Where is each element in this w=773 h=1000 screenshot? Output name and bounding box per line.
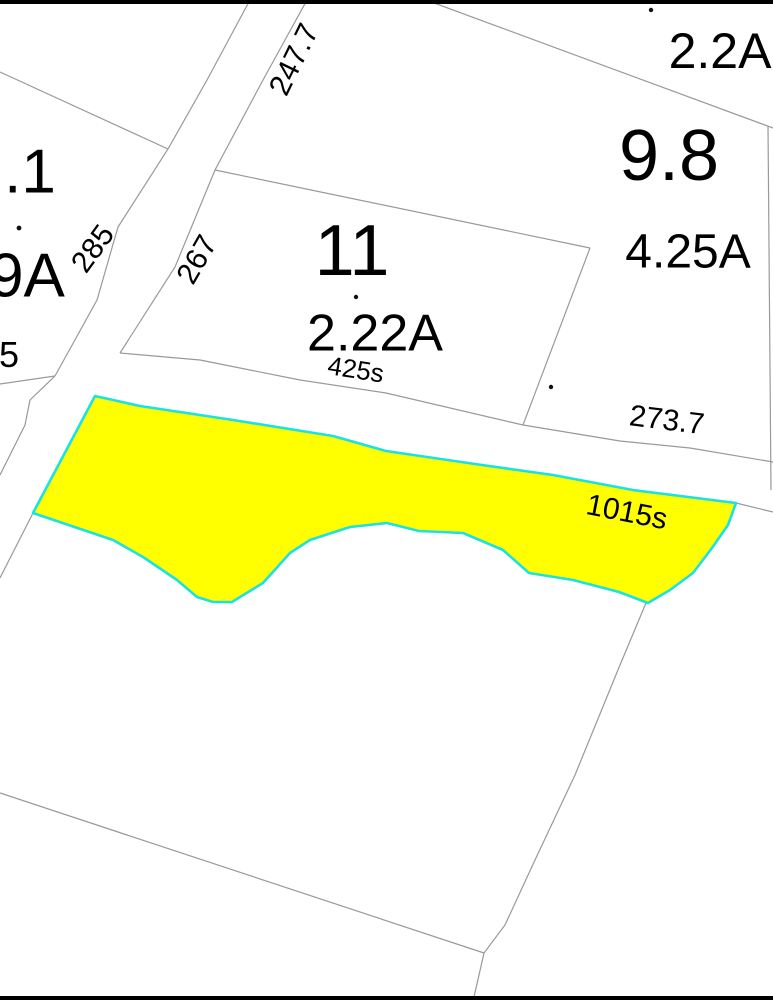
- parcel-map-page: .19A5285267247.7112.22A425s2.2A9.84.25A2…: [0, 0, 773, 1000]
- label-parcel-1-1: .1: [4, 137, 56, 206]
- label-area-2-2a: 2.2A: [669, 23, 773, 79]
- label-area-2-22a: 2.22A: [307, 305, 443, 363]
- map-canvas[interactable]: .19A5285267247.7112.22A425s2.2A9.84.25A2…: [0, 0, 773, 1000]
- label-parcel-9-8: 9.8: [619, 116, 719, 196]
- label-area-4-25a: 4.25A: [625, 225, 750, 278]
- point-marker: [549, 385, 553, 389]
- label-parcel-9a: 9A: [0, 241, 66, 310]
- bottom-border: [0, 996, 773, 1000]
- point-marker: [354, 295, 358, 299]
- label-parcel-5: 5: [0, 334, 19, 375]
- top-border: [0, 0, 773, 4]
- point-marker: [649, 8, 653, 12]
- label-parcel-11: 11: [315, 211, 390, 291]
- point-marker: [17, 226, 22, 231]
